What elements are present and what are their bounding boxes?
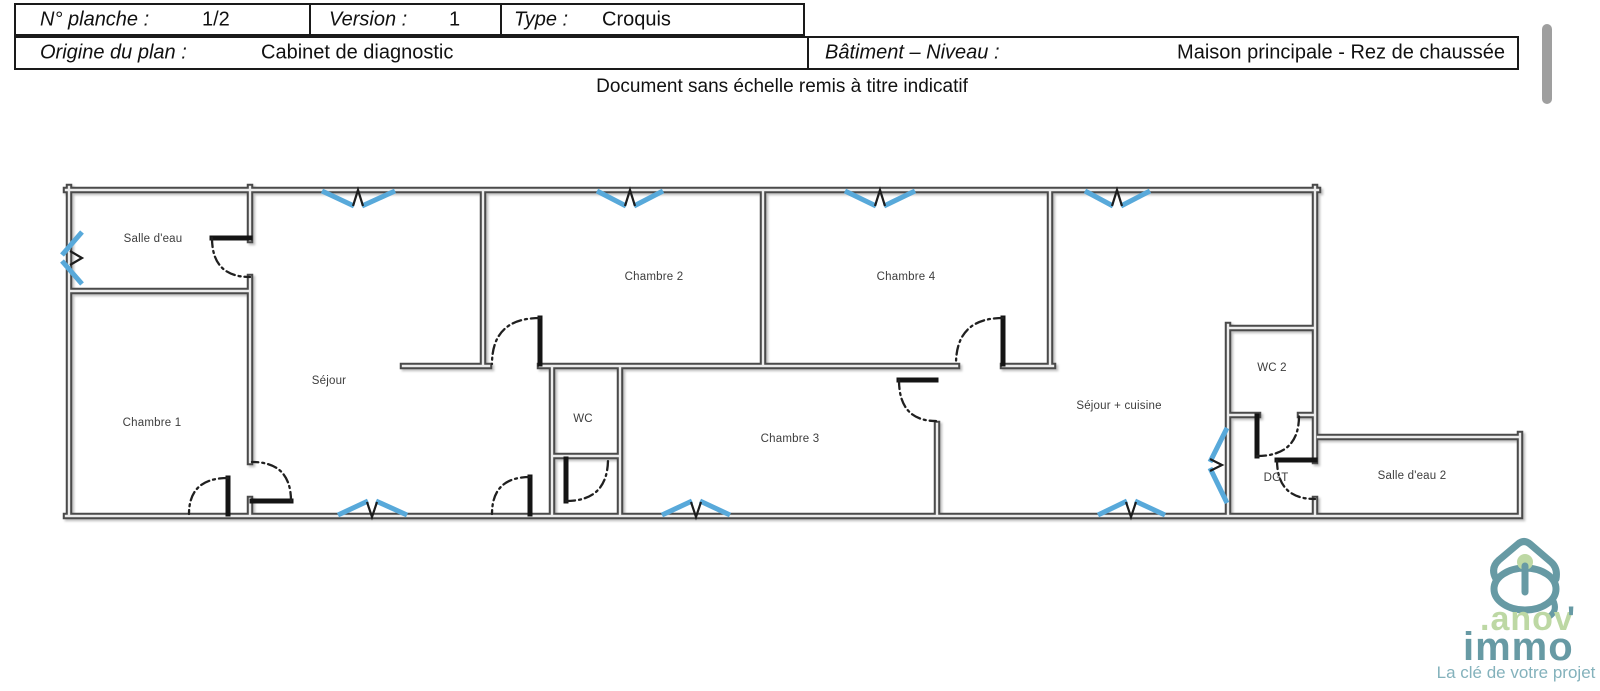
room-label-chambre-2: Chambre 2 [625, 271, 684, 283]
room-label-chambre-4: Chambre 4 [877, 271, 936, 283]
plan-walls-core [66, 187, 1520, 516]
swing-wc-2 [1257, 416, 1299, 456]
room-label-wc-2: WC 2 [1257, 362, 1287, 374]
room-label-sejour-cuisine: Séjour + cuisine [1076, 400, 1161, 412]
room-label-salle-deau-2: Salle d'eau 2 [1378, 470, 1447, 482]
swing-chambre-4 [956, 318, 1003, 364]
plan-walls [66, 187, 1520, 516]
swing-wc [566, 459, 608, 501]
scrollbar-thumb[interactable] [1542, 24, 1552, 104]
window-dgt-ouest [1210, 428, 1227, 503]
swing-sejour [252, 462, 291, 501]
swing-sejour-sud [492, 477, 530, 514]
room-label-sejour: Séjour [312, 375, 346, 387]
document-page: N° planche : 1/2 Version : 1 Type : Croq… [0, 0, 1600, 691]
room-label-wc: WC [573, 413, 593, 425]
brand-tagline: La clé de votre projet [1437, 663, 1596, 682]
room-label-chambre-1: Chambre 1 [123, 417, 182, 429]
floor-plan-drawing [0, 0, 1600, 691]
swing-chambre-3 [899, 380, 936, 421]
room-label-chambre-3: Chambre 3 [761, 433, 820, 445]
swing-chambre-1 [189, 478, 228, 514]
room-label-dgt: DGT [1264, 472, 1289, 484]
window-tick-9 [1210, 459, 1222, 471]
door-swings [189, 238, 1315, 514]
swing-chambre-2 [492, 318, 540, 364]
room-label-salle-deau: Salle d'eau [124, 233, 183, 245]
swing-salle-deau [212, 238, 250, 277]
anov-immo-logo: .anov ' immo La clé de votre projet [1390, 528, 1600, 688]
